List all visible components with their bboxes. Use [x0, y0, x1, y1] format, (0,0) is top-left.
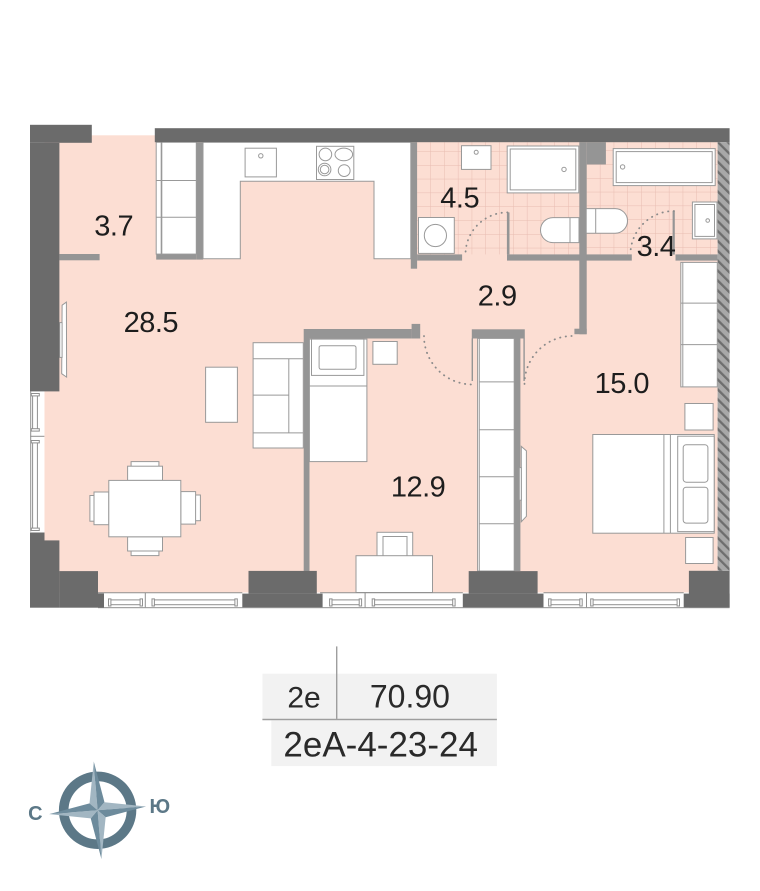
svg-text:Ю: Ю — [149, 796, 170, 818]
svg-text:70.90: 70.90 — [370, 679, 450, 715]
svg-text:3.4: 3.4 — [637, 231, 676, 263]
svg-text:2еА-4-23-24: 2еА-4-23-24 — [283, 725, 478, 764]
svg-text:15.0: 15.0 — [595, 368, 649, 400]
svg-text:2е: 2е — [287, 682, 320, 715]
svg-text:4.5: 4.5 — [440, 183, 479, 215]
svg-text:2.9: 2.9 — [478, 281, 517, 313]
svg-text:28.5: 28.5 — [124, 307, 178, 339]
svg-text:С: С — [28, 803, 42, 825]
svg-text:12.9: 12.9 — [391, 471, 445, 503]
svg-text:3.7: 3.7 — [94, 211, 133, 243]
